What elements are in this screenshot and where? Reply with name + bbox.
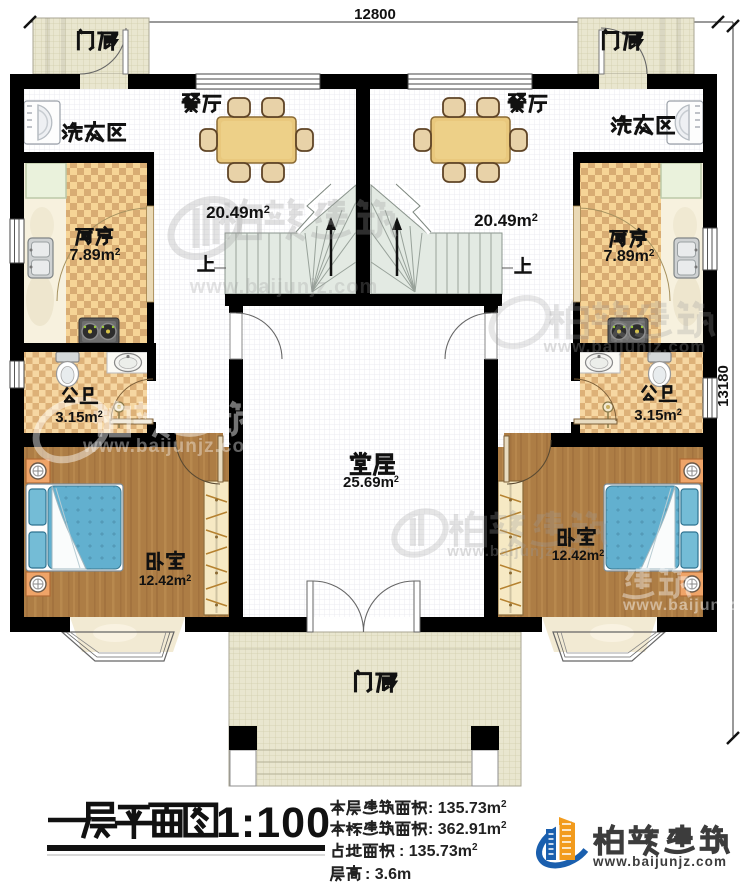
svg-text:13180: 13180 <box>715 365 732 407</box>
svg-text:7.89m2: 7.89m2 <box>70 247 121 264</box>
svg-text:: 362.91m2: : 362.91m2 <box>428 820 507 838</box>
svg-text:: 135.73m2: : 135.73m2 <box>428 799 507 817</box>
svg-text:: 135.73m2: : 135.73m2 <box>399 842 478 860</box>
svg-text:3.15m2: 3.15m2 <box>634 407 682 424</box>
svg-text:1:100: 1:100 <box>216 799 331 847</box>
svg-text:12.42m2: 12.42m2 <box>139 572 192 588</box>
svg-text:www.baijunjz.com: www.baijunjz.com <box>189 276 379 298</box>
svg-text:www.baijunjz.com: www.baijunjz.com <box>543 337 707 356</box>
svg-text:12.42m2: 12.42m2 <box>552 547 605 563</box>
svg-text:www.baijunjz.com: www.baijunjz.com <box>592 854 727 869</box>
svg-text:: 3.6m: : 3.6m <box>365 866 411 883</box>
svg-text:12800: 12800 <box>354 6 396 23</box>
svg-text:25.69m2: 25.69m2 <box>343 474 399 491</box>
svg-text:www.baijunjz.com: www.baijunjz.com <box>622 597 750 614</box>
svg-text:www.baijunjz.com: www.baijunjz.com <box>82 436 263 457</box>
svg-text:7.89m2: 7.89m2 <box>604 248 655 265</box>
svg-text:20.49m2: 20.49m2 <box>206 203 270 222</box>
svg-text:20.49m2: 20.49m2 <box>474 211 538 230</box>
svg-text:3.15m2: 3.15m2 <box>55 409 103 426</box>
